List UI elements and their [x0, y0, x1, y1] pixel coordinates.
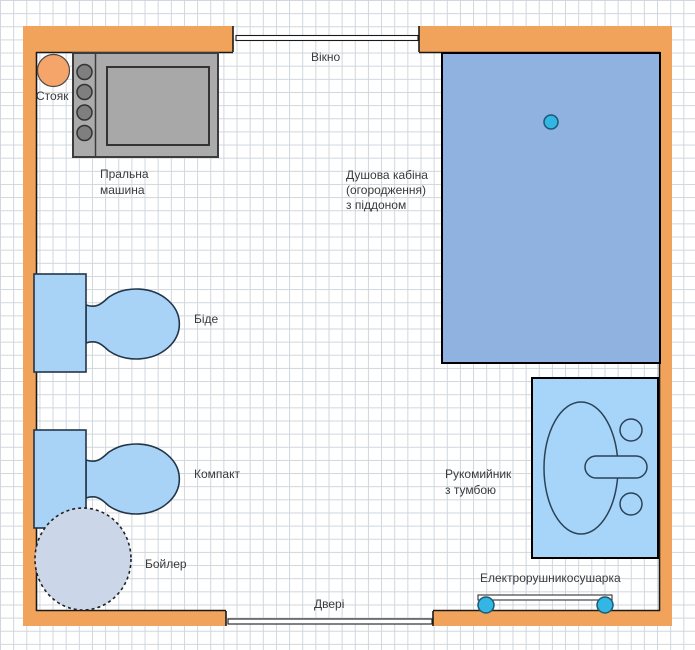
machine-knob-4: [77, 126, 92, 141]
washing-machine-drum: [107, 67, 209, 145]
bidet-bowl[interactable]: [86, 289, 179, 359]
wall-bottom-right-segment: [433, 611, 672, 626]
shower-cabin-shape[interactable]: [442, 53, 660, 363]
riser-shape[interactable]: [38, 55, 70, 87]
wall-top-left-segment: [23, 26, 233, 52]
riser-label: Стояк: [36, 89, 68, 104]
machine-knob-1: [77, 65, 92, 80]
floor-plan-canvas: [0, 0, 695, 650]
window-symbol[interactable]: [236, 36, 418, 41]
door-symbol[interactable]: [228, 619, 432, 624]
towel-dryer-label: Електрорушникосушарка: [480, 571, 621, 586]
shower-tray[interactable]: [442, 53, 660, 363]
machine-knob-2: [77, 85, 92, 100]
wall-top-right-segment: [419, 26, 672, 52]
shower-drain: [544, 115, 558, 129]
washbasin-faucet: [585, 456, 647, 478]
bathroom-floor-plan: Стояк Пральна машина Вікно Душова кабіна…: [0, 0, 695, 650]
toilet-shape[interactable]: [34, 430, 179, 528]
towel-dryer-mount-left: [478, 597, 494, 613]
wall-bottom-left-segment: [23, 611, 226, 626]
wall-right: [660, 26, 672, 626]
towel-dryer-mount-right: [597, 597, 613, 613]
bidet-shape[interactable]: [34, 274, 179, 372]
washbasin-shape[interactable]: [532, 378, 658, 558]
toilet-bowl[interactable]: [86, 444, 179, 514]
bidet-label: Біде: [194, 312, 218, 327]
towel-dryer-rail: [478, 595, 612, 600]
washing-machine-shape[interactable]: [73, 53, 218, 157]
door-label: Двері: [314, 597, 344, 612]
machine-knob-3: [77, 105, 92, 120]
washbasin-label: Рукомийник з тумбою: [445, 466, 511, 498]
bidet-tank[interactable]: [34, 274, 86, 372]
shower-label: Душова кабіна (огородження) з піддоном: [346, 168, 428, 213]
toilet-label: Компакт: [194, 467, 240, 482]
washing-machine-label: Пральна машина: [100, 166, 149, 198]
boiler-label: Бойлер: [145, 557, 187, 572]
boiler-shape[interactable]: [35, 508, 131, 610]
window-label: Вікно: [311, 50, 340, 65]
